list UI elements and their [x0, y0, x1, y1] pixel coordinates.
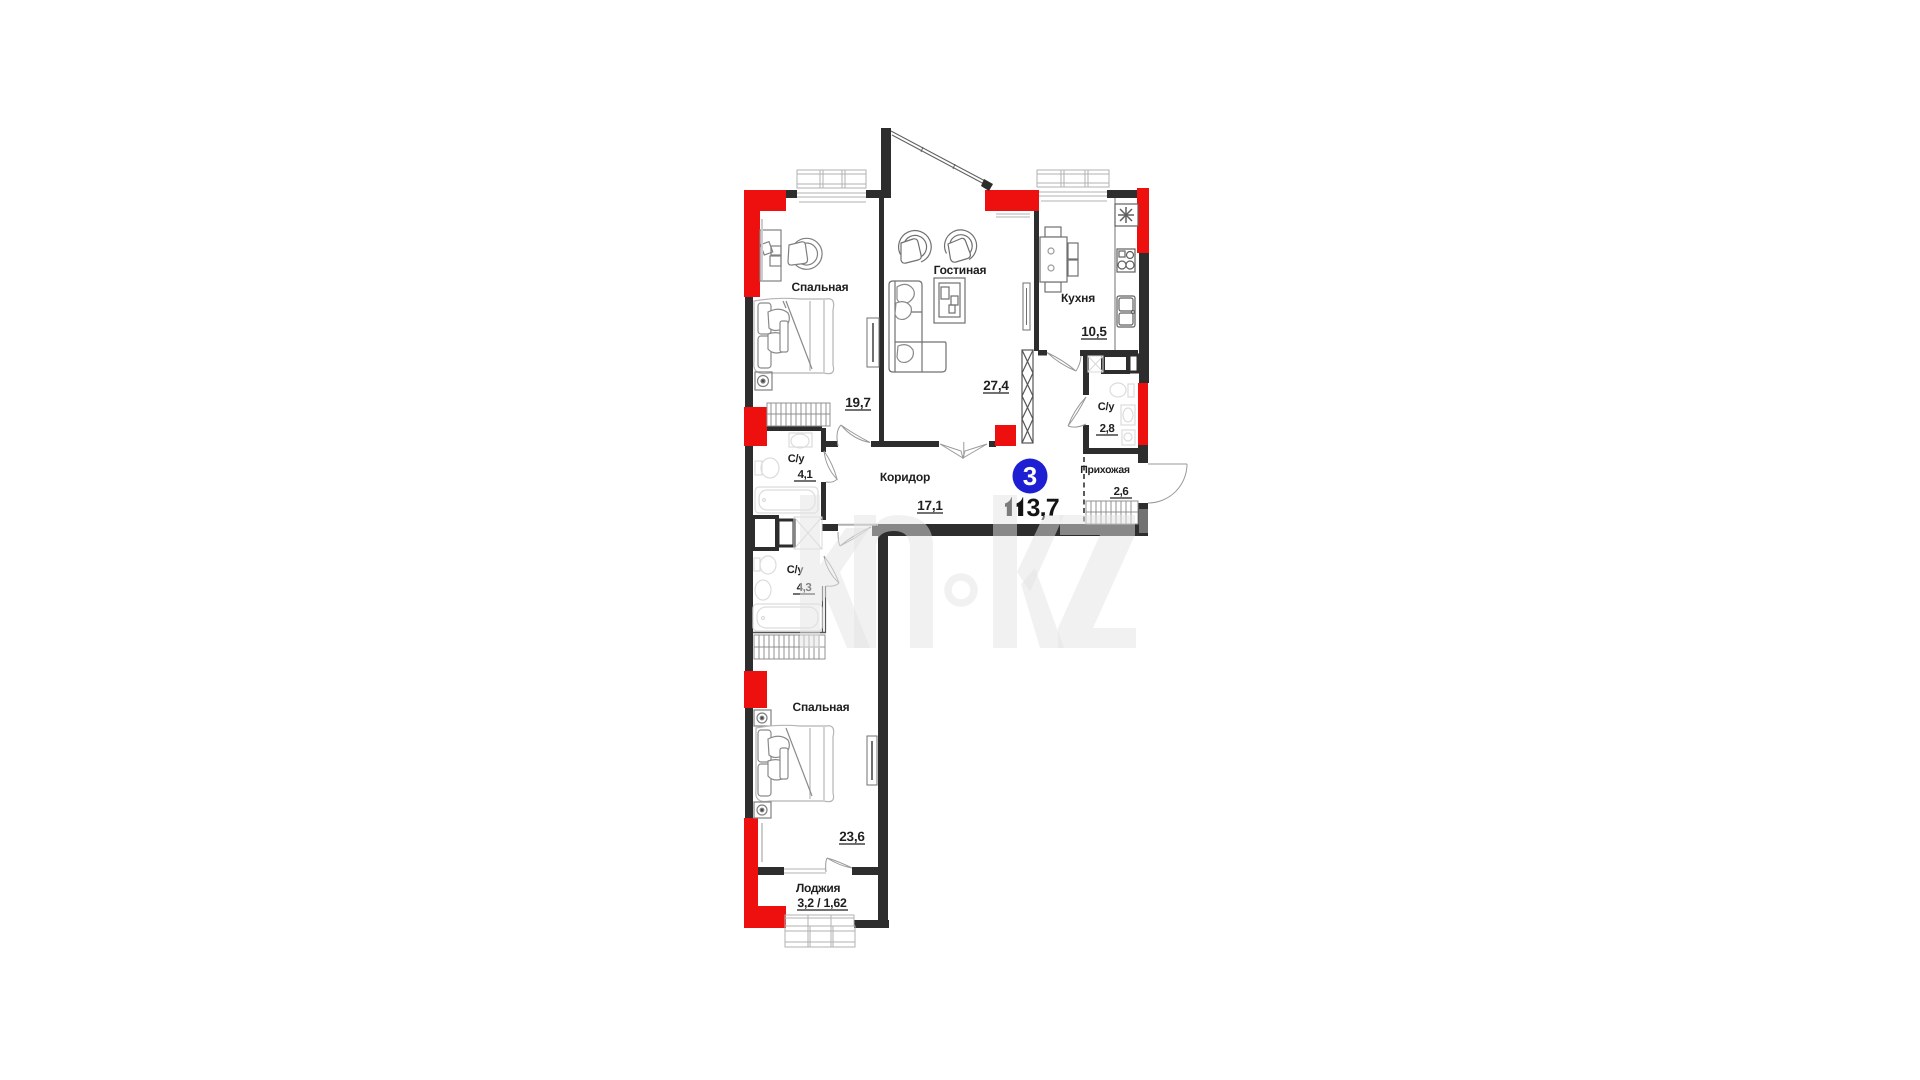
svg-text:Коридор: Коридор — [880, 470, 930, 484]
svg-text:Гостиная: Гостиная — [934, 263, 987, 277]
svg-text:Прихожая: Прихожая — [1080, 464, 1130, 476]
svg-text:3,2 / 1,62: 3,2 / 1,62 — [797, 896, 847, 910]
svg-text:10,5: 10,5 — [1081, 324, 1107, 339]
svg-text:3: 3 — [1023, 461, 1037, 491]
svg-text:С/у: С/у — [1098, 401, 1116, 413]
svg-text:27,4: 27,4 — [983, 378, 1009, 393]
svg-text:2,8: 2,8 — [1100, 423, 1116, 435]
svg-text:4,1: 4,1 — [798, 469, 814, 481]
svg-text:2,6: 2,6 — [1114, 486, 1129, 498]
svg-text:Спальная: Спальная — [793, 700, 850, 714]
svg-text:23,6: 23,6 — [839, 829, 865, 844]
svg-text:19,7: 19,7 — [845, 395, 870, 410]
svg-text:17,1: 17,1 — [917, 498, 943, 513]
svg-text:Кухня: Кухня — [1061, 291, 1095, 305]
svg-text:Лоджия: Лоджия — [796, 881, 841, 895]
svg-text:С/у: С/у — [788, 453, 806, 465]
svg-text:Спальная: Спальная — [792, 280, 849, 294]
